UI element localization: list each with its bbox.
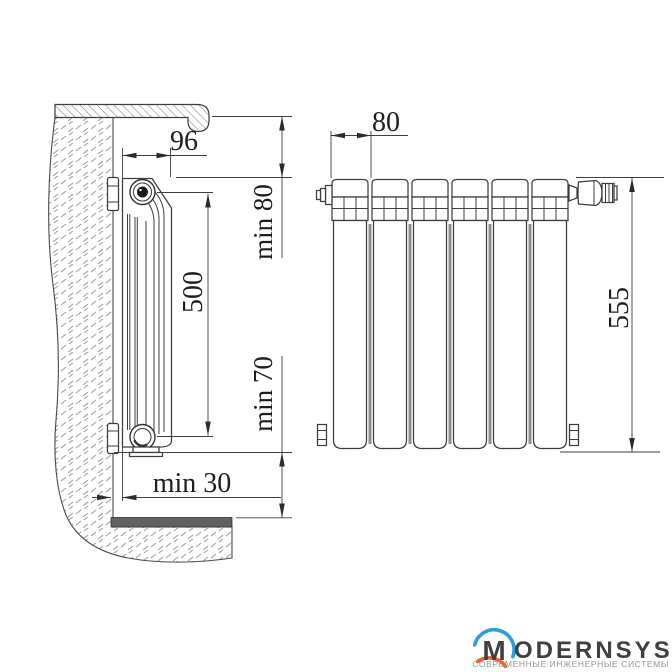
dimension-wall-gap-min30: min 30: [92, 445, 281, 501]
radiator-bottom-plug: [130, 425, 155, 450]
radiator-section: [492, 180, 528, 449]
radiator-section: [412, 180, 448, 449]
dimension-depth-96: 96: [123, 126, 208, 178]
technical-drawing: 96 min 80 500 min 70 min 30: [0, 0, 672, 672]
bottom-tab-right: [570, 425, 579, 446]
floor-screed-strip: [111, 518, 232, 528]
wall-bracket-top: [108, 178, 119, 211]
dim-label-555: 555: [604, 287, 635, 329]
side-view-radiator: [108, 178, 172, 457]
wall-bracket-bottom: [108, 424, 119, 454]
dimension-section-pitch-80: 80: [331, 107, 408, 178]
thermostatic-valve-icon: [569, 181, 617, 206]
dim-label-500: 500: [178, 271, 209, 313]
dim-label-min80: min 80: [248, 184, 278, 260]
radiator-installation-diagram: 96 min 80 500 min 70 min 30: [0, 0, 672, 672]
dim-label-min30: min 30: [153, 468, 232, 499]
radiator-section: [372, 180, 408, 449]
air-vent-plug-icon: [317, 186, 333, 205]
dimension-overall-height-555: 555: [560, 178, 664, 453]
radiator-foot: [130, 447, 163, 457]
bottom-tab-left: [318, 425, 327, 446]
dim-label-min70: min 70: [248, 356, 278, 432]
brand-subtitle: СОВРЕМЕННЫЕ ИНЖЕНЕРНЫЕ СИСТЕМЫ: [472, 659, 669, 669]
radiator-section: [332, 180, 368, 449]
radiator-section: [452, 180, 488, 449]
logo: M ODERNSYS СОВРЕМЕННЫЕ ИНЖЕНЕРНЫЕ СИСТЕМ…: [472, 630, 672, 669]
radiator-section: [532, 180, 568, 449]
dim-label-80: 80: [372, 107, 400, 138]
dim-label-96: 96: [170, 126, 198, 157]
front-view-radiator: [317, 180, 618, 449]
radiator-top-plug: [130, 180, 155, 205]
